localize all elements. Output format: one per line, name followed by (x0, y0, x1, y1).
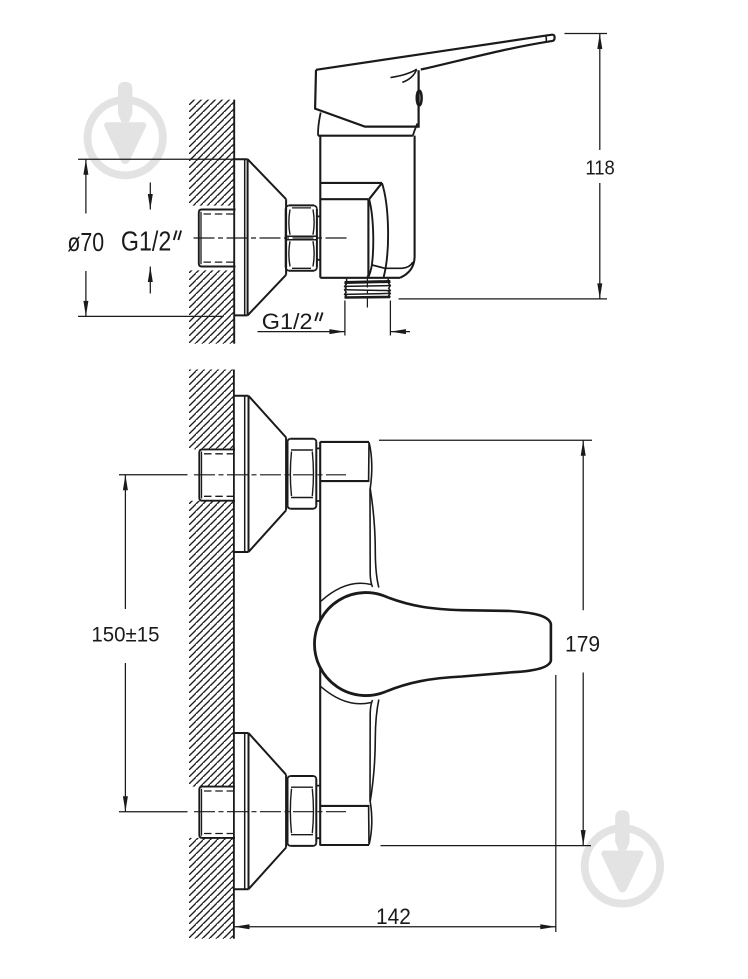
svg-text:G1/2: G1/2 (121, 226, 171, 257)
svg-text:150±15: 150±15 (91, 624, 159, 647)
svg-text:G1/2: G1/2 (262, 309, 313, 334)
svg-text:ø70: ø70 (67, 227, 104, 257)
svg-text:142: 142 (376, 904, 411, 929)
svg-text:118: 118 (585, 157, 614, 180)
svg-text:179: 179 (565, 632, 600, 657)
